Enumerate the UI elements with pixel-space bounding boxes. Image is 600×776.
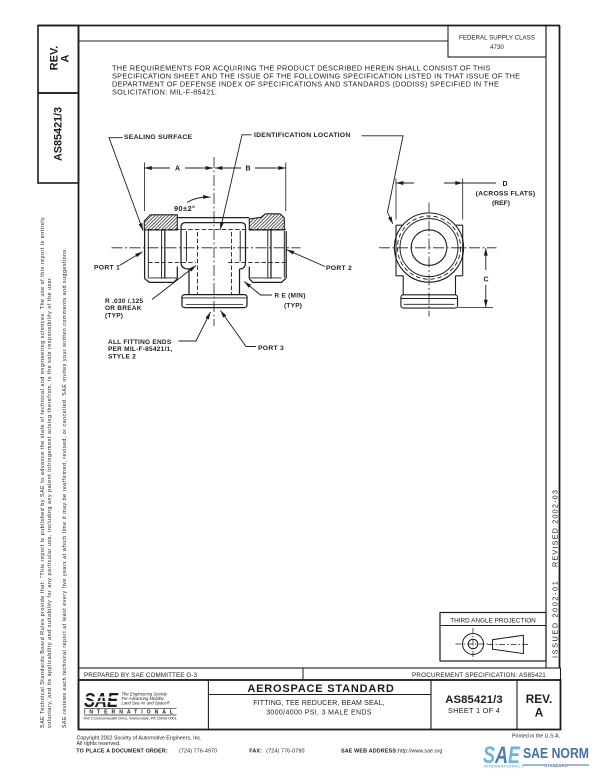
- svg-text:(TYP): (TYP): [284, 303, 302, 310]
- svg-text:voluntary, and its applicabili: voluntary, and its applicability and sui…: [47, 276, 53, 728]
- svg-text:90±2°: 90±2°: [174, 204, 195, 213]
- svg-text:OR BREAK: OR BREAK: [105, 305, 142, 312]
- svg-text:http://www.sae.org: http://www.sae.org: [398, 749, 442, 755]
- svg-text:PORT 1: PORT 1: [94, 264, 120, 271]
- svg-text:ISSUED 2002-01: ISSUED 2002-01: [551, 580, 560, 658]
- svg-text:AS85421/3: AS85421/3: [445, 694, 502, 706]
- svg-text:PROCUREMENT SPECIFICATION: AS8: PROCUREMENT SPECIFICATION: AS85421: [412, 672, 546, 679]
- svg-text:INTERNATIONAL®: INTERNATIONAL®: [484, 764, 525, 769]
- svg-text:3000/4000 PSI, 3 MALE ENDS: 3000/4000 PSI, 3 MALE ENDS: [266, 710, 372, 717]
- svg-text:(REF): (REF): [492, 200, 510, 207]
- svg-text:4730: 4730: [490, 44, 504, 51]
- svg-text:(ACROSS FLATS): (ACROSS FLATS): [476, 191, 536, 198]
- svg-text:THIRD ANGLE PROJECTION: THIRD ANGLE PROJECTION: [450, 617, 536, 624]
- svg-text:FAX:: FAX:: [249, 749, 262, 755]
- svg-text:IDENTIFICATION LOCATION: IDENTIFICATION LOCATION: [254, 132, 351, 139]
- svg-text:All rights reserved.: All rights reserved.: [77, 741, 121, 747]
- svg-text:Printed in the U.S.A.: Printed in the U.S.A.: [512, 734, 560, 740]
- svg-text:PORT 3: PORT 3: [258, 345, 284, 352]
- svg-text:(TYP): (TYP): [105, 312, 123, 319]
- svg-text:SOLICITATION: MIL-F-85421.: SOLICITATION: MIL-F-85421.: [112, 88, 217, 97]
- svg-text:SAE NORM: SAE NORM: [523, 746, 589, 762]
- svg-text:AS85421/3: AS85421/3: [53, 107, 65, 161]
- svg-text:A: A: [175, 166, 180, 173]
- svg-text:SAE reviews each technical rep: SAE reviews each technical report at lea…: [62, 247, 68, 728]
- svg-text:SAE WEB ADDRESS:: SAE WEB ADDRESS:: [341, 749, 398, 755]
- svg-text:Land Sea Air and Space®: Land Sea Air and Space®: [122, 700, 171, 705]
- svg-text:(724) 776-0790: (724) 776-0790: [266, 749, 304, 755]
- svg-text:R .030 /.125: R .030 /.125: [105, 298, 144, 305]
- svg-text:R E (MIN): R E (MIN): [275, 293, 306, 300]
- svg-text:TO PLACE A DOCUMENT ORDER:: TO PLACE A DOCUMENT ORDER:: [76, 749, 168, 755]
- svg-text:REV.: REV.: [526, 692, 552, 706]
- svg-text:SEALING SURFACE: SEALING SURFACE: [124, 134, 193, 141]
- svg-text:SAE Technical Standards Board: SAE Technical Standards Board Rules prov…: [40, 217, 46, 728]
- svg-text:FITTING, TEE REDUCER, BEAM SEA: FITTING, TEE REDUCER, BEAM SEAL,: [253, 700, 384, 707]
- svg-text:AEROSPACE STANDARD: AEROSPACE STANDARD: [247, 683, 394, 695]
- svg-text:REVISED 2002-03: REVISED 2002-03: [551, 489, 560, 567]
- svg-text:A: A: [535, 706, 544, 720]
- svg-text:C: C: [483, 277, 488, 284]
- svg-text:D: D: [502, 181, 507, 188]
- svg-text:PORT 2: PORT 2: [326, 265, 352, 272]
- svg-text:STYLE 2: STYLE 2: [108, 354, 136, 361]
- svg-text:B: B: [245, 166, 250, 173]
- svg-text:SHEET 1 OF 4: SHEET 1 OF 4: [448, 706, 500, 715]
- svg-text:PREPARED BY SAE COMMITTEE G-3: PREPARED BY SAE COMMITTEE G-3: [84, 672, 198, 679]
- svg-text:A: A: [60, 54, 72, 62]
- svg-text:PER MIL-F-85421/1,: PER MIL-F-85421/1,: [108, 346, 172, 353]
- svg-text:400 Commonwealth Drive, Warren: 400 Commonwealth Drive, Warrendale, PA 1…: [84, 717, 177, 721]
- svg-text:STANDARD: STANDARD: [544, 763, 567, 768]
- svg-text:ALL FITTING ENDS: ALL FITTING ENDS: [108, 339, 172, 346]
- svg-text:FEDERAL SUPPLY CLASS: FEDERAL SUPPLY CLASS: [459, 35, 535, 42]
- svg-text:(724) 776-4970: (724) 776-4970: [179, 749, 217, 755]
